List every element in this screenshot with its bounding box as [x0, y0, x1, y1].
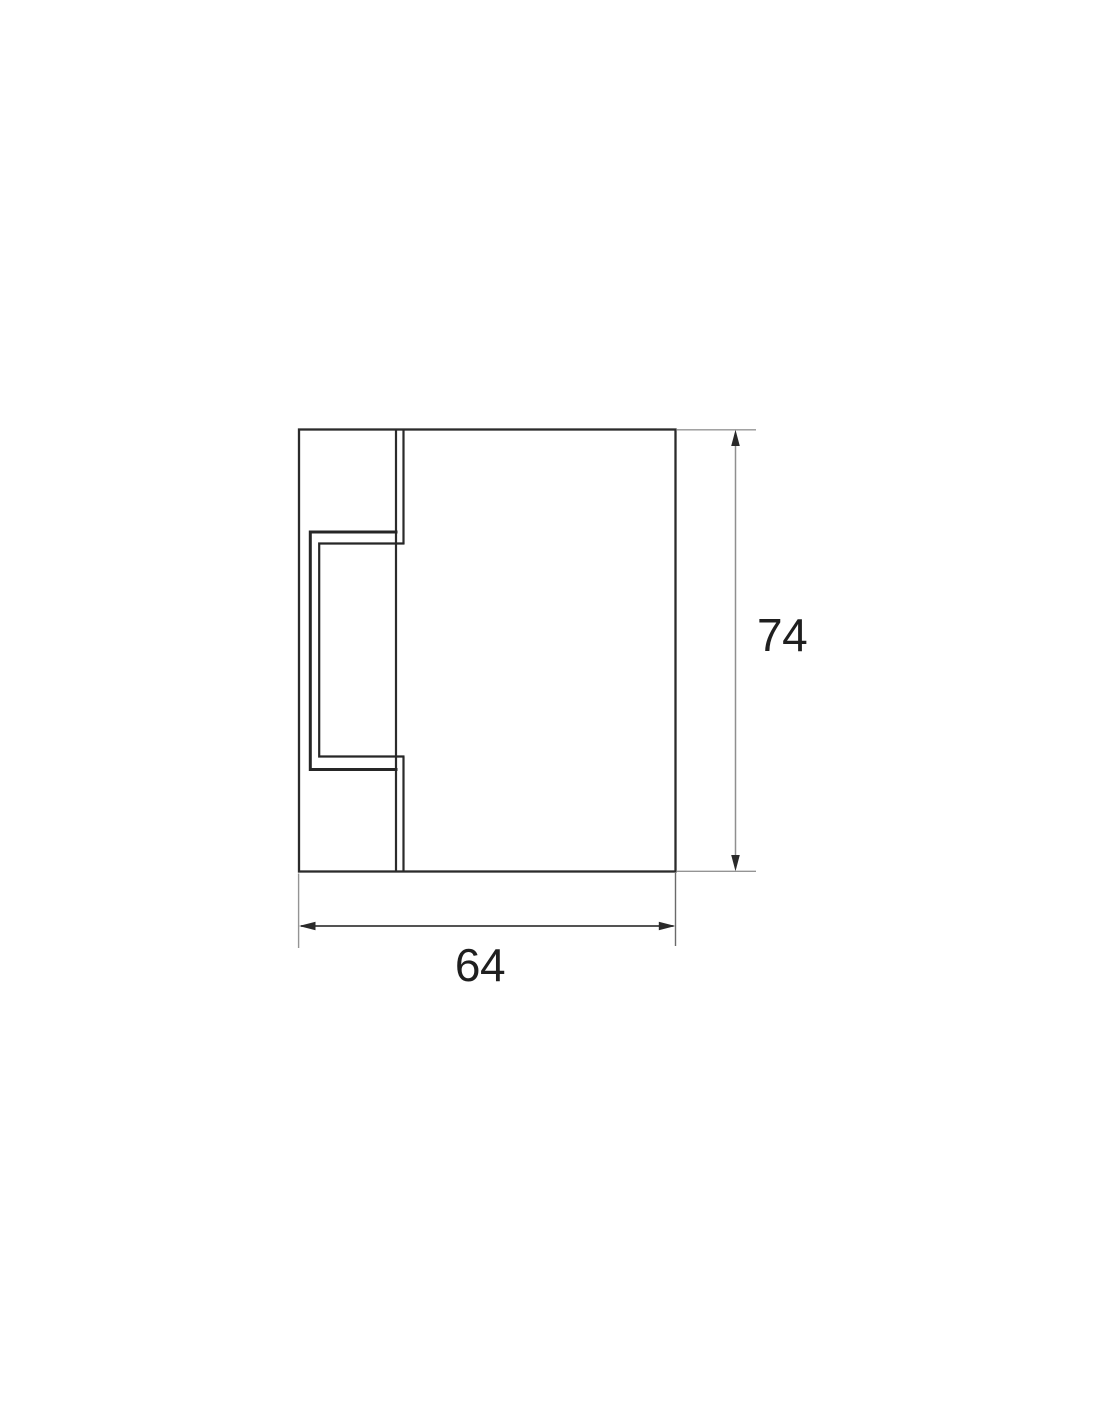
glass-slot-outer-profile: [310, 532, 397, 770]
height-arrow-up-icon: [731, 430, 740, 446]
part-body-outline: [299, 430, 676, 872]
height-arrow-down-icon: [731, 855, 740, 871]
technical-drawing: 74 64: [0, 0, 1100, 1422]
height-dimension-label: 74: [757, 611, 807, 659]
width-arrow-right-icon: [659, 922, 676, 931]
glass-slot-inner-profile: [319, 544, 404, 757]
dimension-drawing-canvas: [0, 0, 1100, 1422]
width-dimension-label: 64: [449, 941, 511, 989]
width-arrow-left-icon: [299, 922, 316, 931]
